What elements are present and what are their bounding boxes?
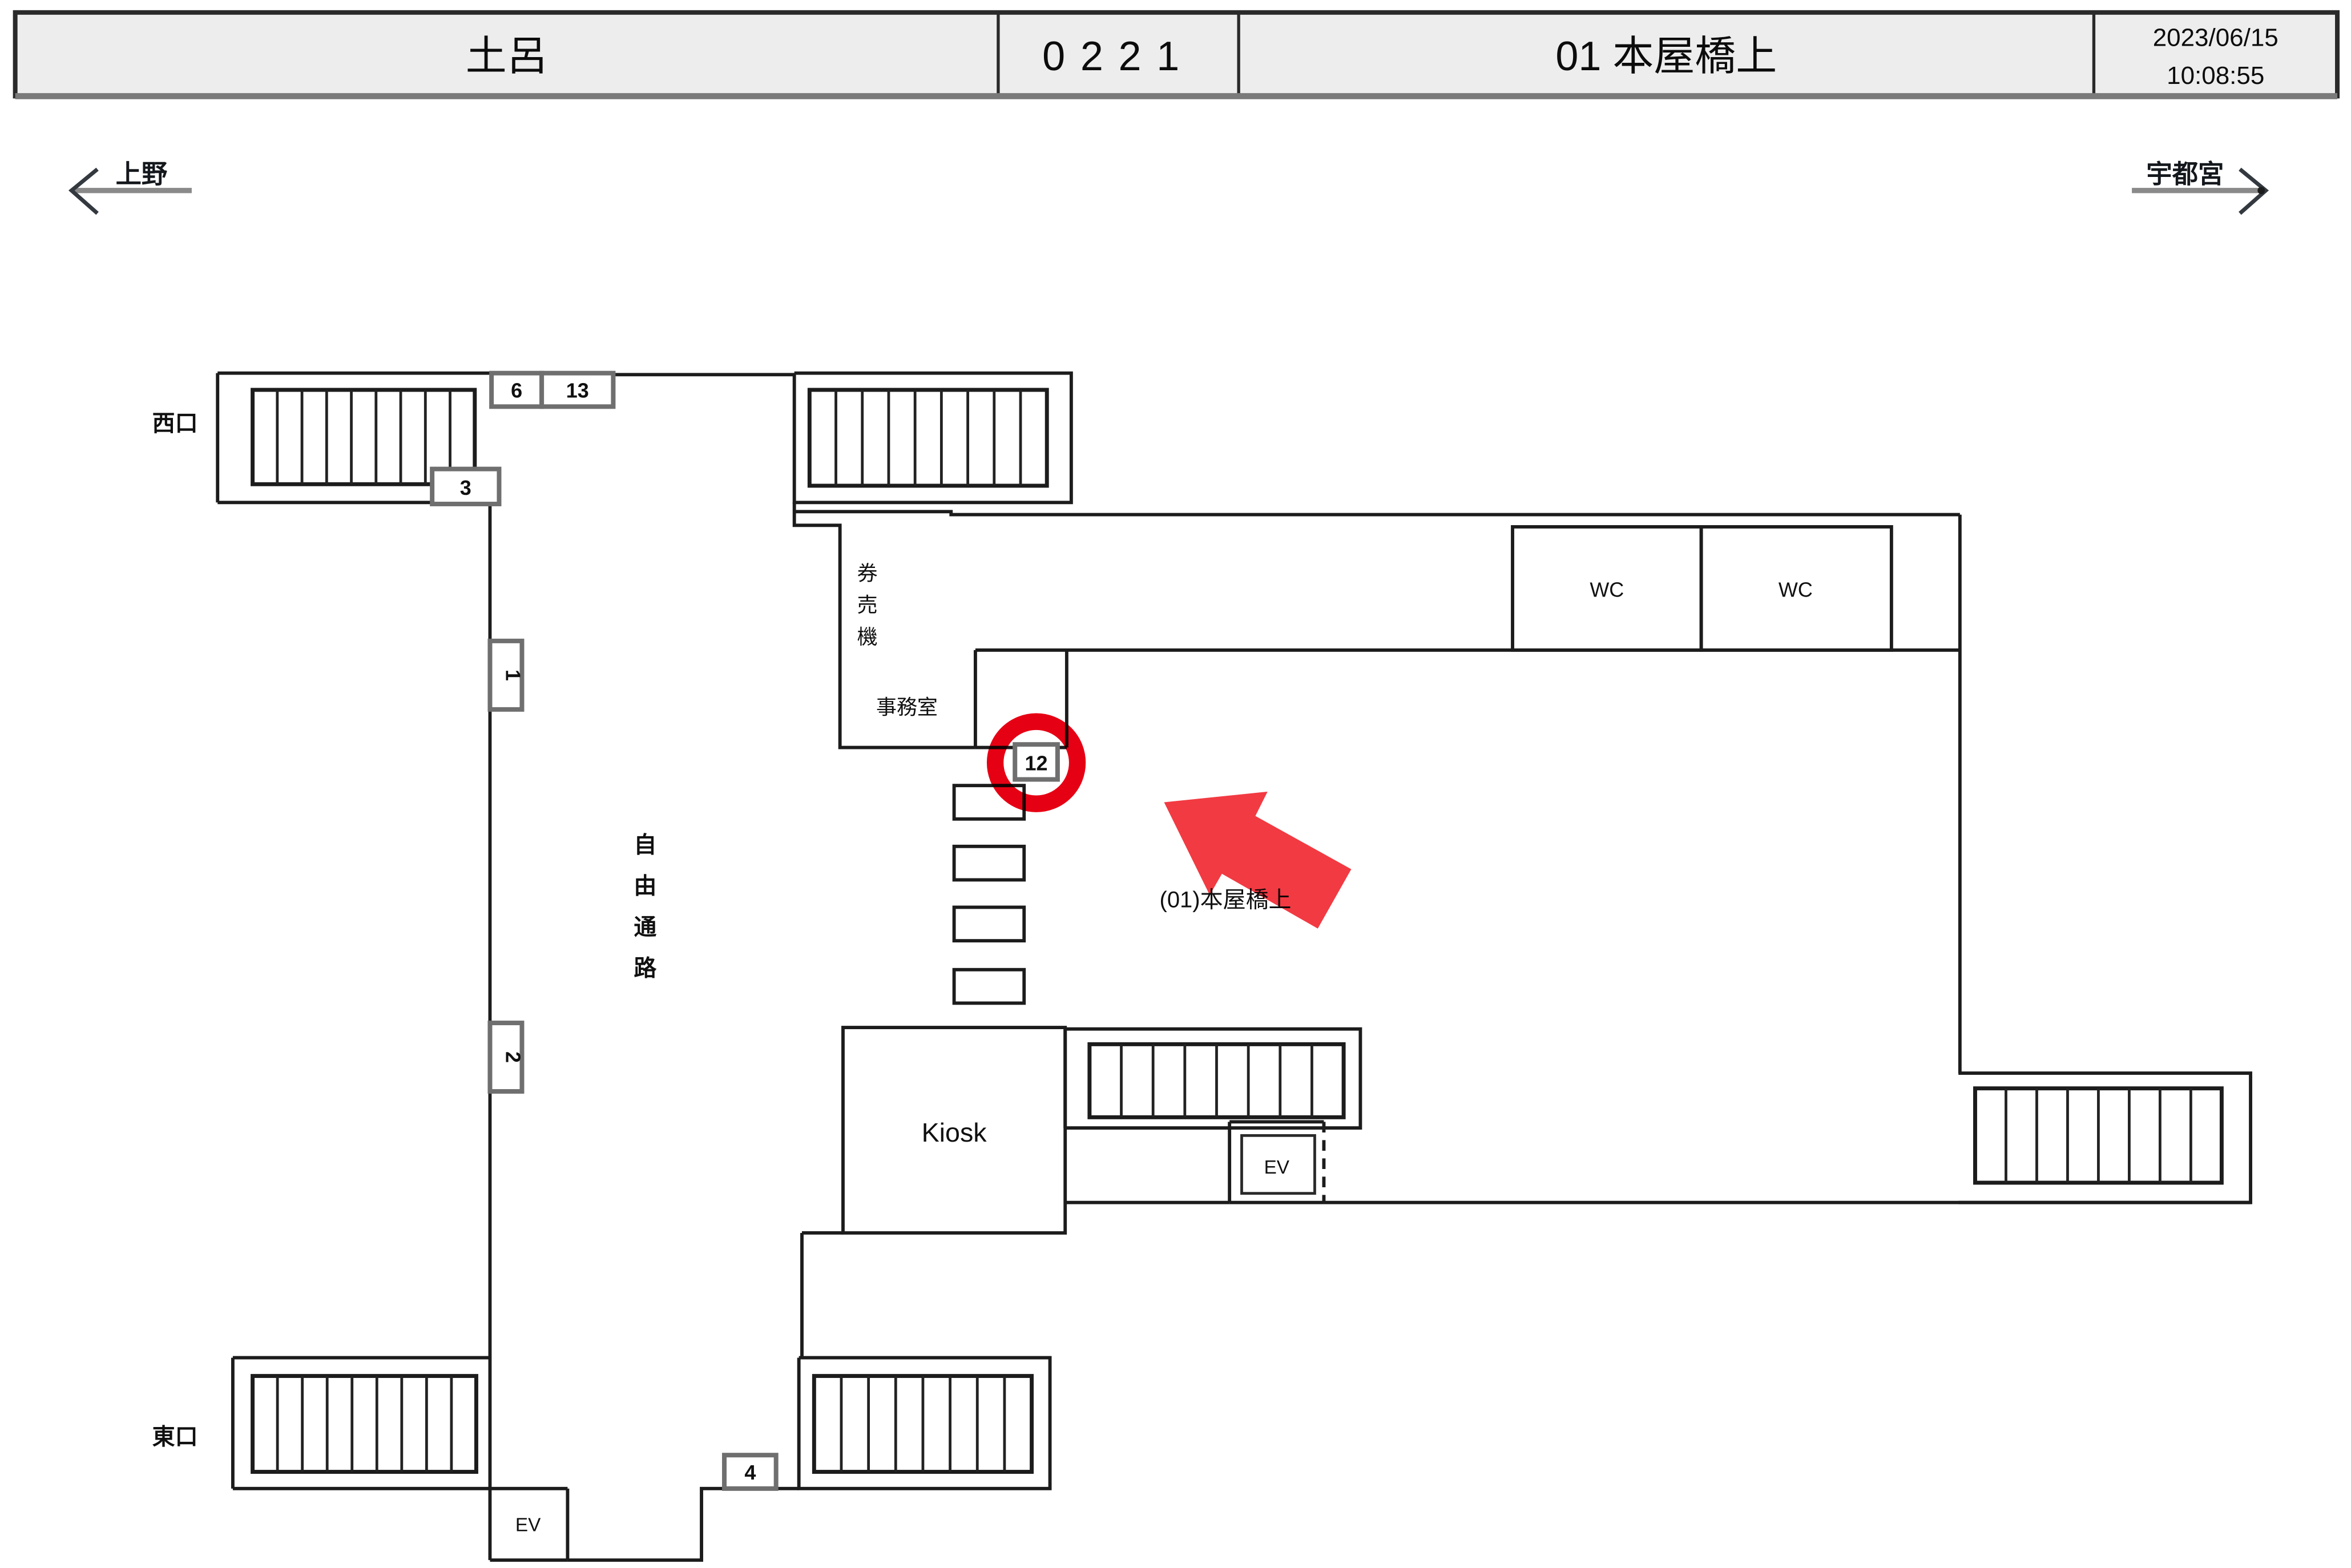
header-bottom-shadow: [15, 93, 2337, 99]
ev-concourse-label: EV: [1264, 1157, 1290, 1178]
west-exit-label: 西口: [152, 411, 198, 436]
kiosk-label: Kiosk: [922, 1118, 987, 1147]
svg-text:由: 由: [634, 873, 656, 898]
ueno-label: 上野: [116, 159, 168, 188]
ev-passage-label: EV: [515, 1515, 541, 1536]
location-title: 01 本屋橋上: [1555, 34, 1777, 79]
svg-text:2: 2: [501, 1051, 525, 1063]
svg-text:3: 3: [460, 476, 471, 499]
utsunomiya-label: 宇都宮: [2146, 159, 2224, 188]
ticket-machine-label: 券 売 機: [857, 561, 878, 648]
svg-text:6: 6: [511, 378, 522, 402]
wc-left-label: WC: [1590, 578, 1624, 602]
marker-4[interactable]: 4: [724, 1455, 776, 1489]
stairs-north-hatch: [809, 390, 1047, 486]
svg-text:機: 機: [857, 625, 878, 648]
svg-text:路: 路: [634, 956, 657, 981]
passage-bottom-step-wall: [567, 1489, 799, 1560]
ticket-gates: [954, 785, 1025, 1003]
svg-text:売: 売: [857, 593, 878, 616]
gate-machine-2: [954, 847, 1025, 880]
station-name: 土呂: [466, 34, 548, 79]
svg-text:13: 13: [566, 378, 589, 402]
marker-13[interactable]: 13: [542, 373, 613, 407]
header-time: 10:08:55: [2167, 62, 2264, 90]
stairs-south-hatch: [814, 1376, 1031, 1472]
marker-3[interactable]: 3: [432, 469, 499, 504]
floorplan-walls: [217, 373, 2251, 1560]
header-bar: 土呂 0221 01 本屋橋上 2023/06/15 10:08:55: [15, 13, 2337, 99]
svg-text:12: 12: [1025, 752, 1048, 775]
stairs-east-hatch: [1975, 1089, 2221, 1183]
stairs-mid-hatch: [1090, 1044, 1344, 1117]
east-exit-label: 東口: [152, 1425, 198, 1450]
office-label: 事務室: [876, 695, 938, 719]
svg-text:券: 券: [857, 561, 878, 585]
direction-ueno: 上野: [71, 159, 192, 213]
direction-utsunomiya: 宇都宮: [2132, 159, 2266, 213]
free-passage-label: 自 由 通 路: [634, 832, 657, 981]
svg-text:1: 1: [501, 670, 525, 681]
stairs-eastexit-hatch: [253, 1376, 477, 1472]
right-arrow-dot: [2257, 187, 2265, 194]
svg-text:4: 4: [744, 1461, 756, 1484]
station-code: 0221: [1042, 34, 1195, 79]
station-floorplan-page: 土呂 0221 01 本屋橋上 2023/06/15 10:08:55 上野 宇…: [0, 0, 2351, 1568]
gate-machine-4: [954, 970, 1025, 1003]
marker-1[interactable]: 1: [490, 641, 525, 710]
office-room-and-interior-wall: [975, 650, 1960, 748]
svg-text:自: 自: [634, 832, 656, 857]
marker-2[interactable]: 2: [490, 1023, 525, 1091]
passage-right-wall-lower: [802, 1233, 843, 1358]
marker-12[interactable]: 12: [1015, 744, 1058, 779]
svg-text:通: 通: [634, 914, 656, 940]
header-date: 2023/06/15: [2153, 23, 2279, 51]
wc-right-label: WC: [1779, 578, 1813, 602]
gate-machine-3: [954, 907, 1025, 941]
marker-6[interactable]: 6: [491, 373, 542, 407]
